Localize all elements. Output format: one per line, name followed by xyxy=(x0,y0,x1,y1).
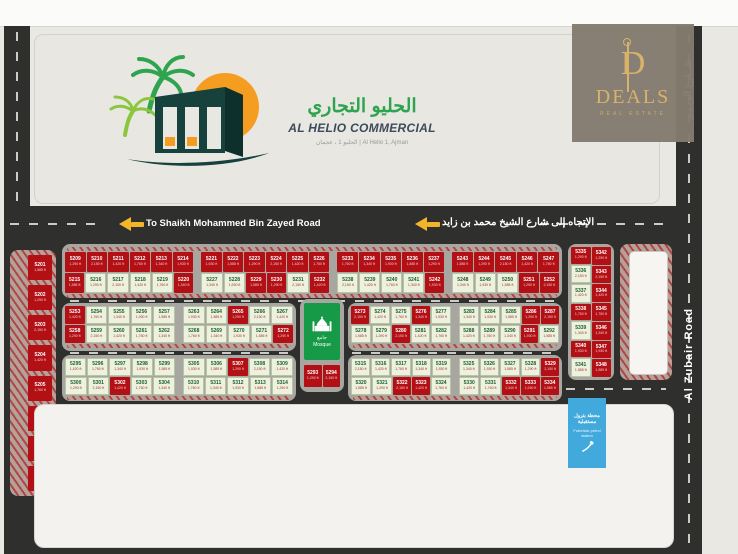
plot-5281: 52811,420 ft xyxy=(411,325,431,343)
parking-hatch xyxy=(67,396,291,400)
plot-5230: 52301,290 ft xyxy=(267,273,287,293)
plot-5309: 53091,420 ft xyxy=(271,358,293,376)
plot-5297: 52971,340 ft xyxy=(109,358,130,376)
plot-5286: 52861,290 ft xyxy=(522,306,540,324)
plot-group: 52531,420 ft52541,760 ft52551,340 ft5256… xyxy=(65,306,175,324)
parking-hatch xyxy=(353,344,557,348)
plot-5313: 53131,585 ft xyxy=(250,377,271,395)
road-dash-line xyxy=(10,223,102,225)
plot-5282: 52821,760 ft xyxy=(431,325,451,343)
plot-group: 52431,585 ft52441,290 ft52452,150 ft5246… xyxy=(452,252,559,272)
plot-block-row1: 52091,290 ft52102,150 ft52111,420 ft5212… xyxy=(62,244,562,298)
plot-5303: 53031,760 ft xyxy=(131,377,153,395)
plot-group: 52271,340 ft52281,930 ft52291,585 ft5230… xyxy=(201,273,329,293)
plot-5248: 52481,340 ft xyxy=(452,273,473,293)
plot-5204: 52041,420 ft xyxy=(28,345,52,370)
plot-group: 52211,930 ft52221,585 ft52231,290 ft5224… xyxy=(201,252,329,272)
plot-5274: 52741,420 ft xyxy=(370,306,390,324)
plot-group: 53051,930 ft53061,585 ft53071,290 ft5308… xyxy=(183,358,293,376)
plot-5205: 52051,760 ft xyxy=(28,376,52,401)
plot-5306: 53061,585 ft xyxy=(206,358,228,376)
plot-5241: 52411,340 ft xyxy=(403,273,424,293)
al-helio-logo-graphic-icon xyxy=(97,49,297,189)
deals-name: DEALS xyxy=(596,86,670,109)
plot-5327: 53271,585 ft xyxy=(500,358,520,376)
top-road: To Shaikh Mohammed Bin Zayed Road الإتجا… xyxy=(4,206,676,242)
plot-5271: 52711,585 ft xyxy=(251,325,273,343)
plot-5231: 52312,150 ft xyxy=(287,273,309,293)
plot-5299: 52991,585 ft xyxy=(154,358,175,376)
plot-5261: 52611,760 ft xyxy=(131,325,153,343)
plot-5217: 52172,150 ft xyxy=(107,273,128,293)
plot-group: 53101,760 ft53111,340 ft53121,930 ft5313… xyxy=(183,377,293,395)
plot-5304: 53041,340 ft xyxy=(153,377,175,395)
plot-5209: 52091,290 ft xyxy=(65,252,86,272)
plot-5212: 52121,760 ft xyxy=(130,252,151,272)
plot-group: 52091,290 ft52102,150 ft52111,420 ft5212… xyxy=(65,252,193,272)
plot-5275: 52751,760 ft xyxy=(391,306,411,324)
petrol-station-label-arabic: محطة بترول مستقبلية xyxy=(570,413,604,426)
plot-group: 52781,585 ft52791,290 ft52802,150 ft5281… xyxy=(351,325,451,343)
reserved-block xyxy=(620,244,672,380)
reserved-block-inner xyxy=(629,251,668,375)
road-dash-line xyxy=(70,352,292,354)
plot-5260: 52601,420 ft xyxy=(108,325,130,343)
plot-5300: 53001,290 ft xyxy=(65,377,87,395)
plot-column: 53351,290 ft53362,150 ft53371,420 ft5338… xyxy=(571,247,591,377)
plot-block-row2-right: 52732,150 ft52741,420 ft52751,760 ft5276… xyxy=(348,303,562,351)
plot-5293: 52931,290 ft xyxy=(304,365,322,387)
road-dash-line xyxy=(566,388,666,390)
plot-5256: 52561,930 ft xyxy=(131,306,153,324)
plot-5342: 53421,290 ft xyxy=(592,247,612,265)
petrol-station-label-english: Futuristic petrol station xyxy=(570,428,604,438)
plot-5288: 52881,420 ft xyxy=(459,325,479,343)
plot-5214: 52141,930 ft xyxy=(173,252,194,272)
plot-5344: 53441,420 ft xyxy=(592,284,612,302)
plot-5266: 52662,150 ft xyxy=(249,306,271,324)
plot-5265: 52651,290 ft xyxy=(228,306,248,324)
plot-5223: 52231,290 ft xyxy=(244,252,265,272)
plot-5278: 52781,585 ft xyxy=(351,325,371,343)
plot-group: 52631,930 ft52641,585 ft52651,290 ft5266… xyxy=(183,306,293,324)
plot-5284: 52841,930 ft xyxy=(480,306,500,324)
plot-5330: 53301,420 ft xyxy=(459,377,479,395)
plot-5253: 52531,420 ft xyxy=(65,306,85,324)
left-access-road xyxy=(4,26,30,208)
plot-5328: 53281,290 ft xyxy=(521,358,541,376)
plot-5210: 52102,150 ft xyxy=(87,252,108,272)
plot-5201: 52011,585 ft xyxy=(28,255,52,280)
plot-group: 52881,420 ft52891,760 ft52901,340 ft5291… xyxy=(459,325,559,343)
parking-hatch xyxy=(353,396,557,400)
plot-5219: 52191,760 ft xyxy=(152,273,173,293)
plot-block-vertical: 53351,290 ft53362,150 ft53371,420 ft5338… xyxy=(568,244,614,380)
plot-5272: 52721,290 ft xyxy=(273,325,293,343)
plot-5257: 52571,585 ft xyxy=(153,306,175,324)
plot-5317: 53171,760 ft xyxy=(391,358,410,376)
plot-5270: 52701,930 ft xyxy=(228,325,250,343)
logo-block: الحليو التجاري AL HELIO COMMERCIAL الحلي… xyxy=(34,34,660,204)
plot-5280: 52802,150 ft xyxy=(392,325,410,343)
plot-5240: 52401,760 ft xyxy=(381,273,402,293)
plot-5315: 53152,150 ft xyxy=(351,358,370,376)
road-dash-line xyxy=(16,32,18,202)
plot-5294: 52942,150 ft xyxy=(323,365,341,387)
plot-group: 53301,420 ft53311,760 ft53321,340 ft5333… xyxy=(459,377,559,395)
plot-5314: 53141,290 ft xyxy=(272,377,293,395)
plot-5335: 53351,290 ft xyxy=(571,247,591,264)
plot-5250: 52501,585 ft xyxy=(497,273,518,293)
plot-5324: 53241,760 ft xyxy=(431,377,451,395)
plot-5295: 52951,420 ft xyxy=(65,358,86,376)
deals-tagline: REAL ESTATE xyxy=(600,111,666,117)
plot-5233: 52331,760 ft xyxy=(337,252,358,272)
plot-5229: 52291,585 ft xyxy=(246,273,266,293)
plot-5333: 53331,930 ft xyxy=(521,377,539,395)
mosque-plot: جامع Mosque xyxy=(304,303,340,360)
plot-5338: 53381,760 ft xyxy=(571,304,591,321)
plot-5296: 52961,760 ft xyxy=(87,358,108,376)
plot-5301: 53012,150 ft xyxy=(88,377,110,395)
parking-hatch xyxy=(67,344,291,348)
plot-5224: 52242,150 ft xyxy=(266,252,287,272)
plot-5289: 52891,760 ft xyxy=(480,325,500,343)
plot-5347: 53471,930 ft xyxy=(592,341,612,359)
plot-5308: 53082,150 ft xyxy=(249,358,271,376)
plot-5232: 52321,420 ft xyxy=(310,273,330,293)
plot-group: 52732,150 ft52741,420 ft52751,760 ft5276… xyxy=(351,306,451,324)
plot-5215: 52151,585 ft xyxy=(65,273,84,293)
plot-group: 53152,150 ft53161,420 ft53171,760 ft5318… xyxy=(351,358,451,376)
plot-5255: 52551,340 ft xyxy=(108,306,130,324)
direction-arrow-icon xyxy=(112,217,144,231)
plot-5222: 52221,585 ft xyxy=(223,252,244,272)
plot-5312: 53121,930 ft xyxy=(227,377,248,395)
plot-5239: 52391,420 ft xyxy=(359,273,380,293)
plot-5243: 52431,585 ft xyxy=(452,252,473,272)
parking-hatch xyxy=(67,247,557,251)
plot-5305: 53051,930 ft xyxy=(183,358,205,376)
plot-5254: 52541,760 ft xyxy=(86,306,108,324)
plot-5340: 53401,930 ft xyxy=(571,341,591,358)
plot-5251: 52511,290 ft xyxy=(519,273,538,293)
plot-5285: 52851,585 ft xyxy=(501,306,521,324)
plot-5320: 53201,585 ft xyxy=(351,377,371,395)
plot-5279: 52791,290 ft xyxy=(372,325,392,343)
top-road-label-english: To Shaikh Mohammed Bin Zayed Road xyxy=(146,218,321,229)
plot-5244: 52441,290 ft xyxy=(474,252,495,272)
plot-5307: 53071,290 ft xyxy=(228,358,248,376)
plot-group: 53201,585 ft53211,290 ft53222,150 ft5323… xyxy=(351,377,451,395)
plot-5277: 52771,930 ft xyxy=(431,306,451,324)
plot-5226: 52261,760 ft xyxy=(309,252,330,272)
plot-5283: 52831,340 ft xyxy=(459,306,479,324)
plot-5211: 52111,420 ft xyxy=(108,252,129,272)
top-road-label-arabic: الإتجاه إلى شارع الشيخ محمد بن زايد xyxy=(442,217,594,228)
plot-5237: 52371,290 ft xyxy=(424,252,445,272)
plot-5322: 53222,150 ft xyxy=(393,377,411,395)
plot-5334: 53341,585 ft xyxy=(541,377,559,395)
plot-5235: 52351,930 ft xyxy=(381,252,402,272)
plot-5290: 52901,340 ft xyxy=(500,325,520,343)
plot-5269: 52691,340 ft xyxy=(206,325,228,343)
plot-block-row2-left: 52531,420 ft52541,760 ft52551,340 ft5256… xyxy=(62,303,296,351)
plot-5329: 53292,150 ft xyxy=(541,358,559,376)
plot-5332: 53321,340 ft xyxy=(502,377,520,395)
plot-5339: 53391,340 ft xyxy=(571,321,591,340)
plot-5348: 53481,585 ft xyxy=(592,359,612,377)
plot-5249: 52491,930 ft xyxy=(475,273,496,293)
plot-5213: 52131,340 ft xyxy=(151,252,172,272)
plot-5268: 52681,760 ft xyxy=(183,325,205,343)
deals-key-logo-icon: D xyxy=(621,49,646,80)
mosque-label-arabic: جامع xyxy=(317,335,327,341)
plot-5262: 52621,340 ft xyxy=(153,325,175,343)
plot-5316: 53161,420 ft xyxy=(371,358,390,376)
plot-5287: 52872,150 ft xyxy=(541,306,559,324)
plot-5326: 53261,930 ft xyxy=(480,358,500,376)
plot-group: 52951,420 ft52961,760 ft52971,340 ft5298… xyxy=(65,358,175,376)
plot-5337: 53371,420 ft xyxy=(571,284,591,303)
plot-column: 53421,290 ft53432,150 ft53441,420 ft5345… xyxy=(592,247,612,377)
plot-5258: 52581,290 ft xyxy=(65,325,85,343)
plot-5252: 52522,150 ft xyxy=(540,273,559,293)
deals-watermark: D DEALS REAL ESTATE xyxy=(572,24,694,142)
plot-5302: 53021,420 ft xyxy=(110,377,130,395)
plot-5318: 53181,340 ft xyxy=(412,358,431,376)
mosque-block: جامع Mosque 52931,290 ft52942,150 ft xyxy=(300,299,344,392)
plot-block-row3-right: 53152,150 ft53161,420 ft53171,760 ft5318… xyxy=(348,355,562,401)
plot-group: 52931,290 ft52942,150 ft xyxy=(304,365,340,387)
plot-block-row3-left: 52951,420 ft52961,760 ft52971,340 ft5298… xyxy=(62,355,296,401)
frame-top-strip xyxy=(0,0,738,27)
plot-5319: 53191,930 ft xyxy=(432,358,451,376)
plot-5227: 52271,340 ft xyxy=(201,273,223,293)
plot-5346: 53461,340 ft xyxy=(592,322,612,340)
deals-initial: D xyxy=(621,45,646,82)
plot-5336: 53362,150 ft xyxy=(571,265,591,284)
logo-title-arabic: الحليو التجاري xyxy=(287,97,437,118)
plot-group: 52151,585 ft52161,290 ft52172,150 ft5218… xyxy=(65,273,193,293)
road-dash-line xyxy=(352,352,558,354)
fuel-pump-icon xyxy=(581,440,594,453)
plot-5311: 53111,340 ft xyxy=(205,377,226,395)
plot-5228: 52281,930 ft xyxy=(224,273,246,293)
plot-group: 53001,290 ft53012,150 ft53021,420 ft5303… xyxy=(65,377,175,395)
plot-5298: 52981,930 ft xyxy=(132,358,153,376)
flyer-root: { "logo": { "title_ar": "الحليو التجاري"… xyxy=(0,0,738,554)
plot-5218: 52181,420 ft xyxy=(130,273,151,293)
plot-5245: 52452,150 ft xyxy=(495,252,516,272)
plot-5310: 53101,760 ft xyxy=(183,377,204,395)
mosque-icon xyxy=(311,316,333,334)
plot-5323: 53231,420 ft xyxy=(412,377,430,395)
plot-group: 52681,760 ft52691,340 ft52701,930 ft5271… xyxy=(183,325,293,343)
plot-5234: 52341,340 ft xyxy=(359,252,380,272)
plot-5225: 52251,420 ft xyxy=(287,252,308,272)
plot-5203: 52032,150 ft xyxy=(28,315,52,340)
plot-5276: 52761,340 ft xyxy=(412,306,430,324)
plot-5264: 52641,585 ft xyxy=(206,306,228,324)
plot-5331: 53311,760 ft xyxy=(480,377,500,395)
plot-5216: 52161,290 ft xyxy=(85,273,106,293)
mosque-label-english: Mosque xyxy=(313,342,331,348)
plot-5267: 52671,420 ft xyxy=(271,306,293,324)
al-zubair-road-label-english: Al Zubair Road xyxy=(683,308,695,400)
petrol-station-plot: محطة بترول مستقبلية Futuristic petrol st… xyxy=(568,398,606,468)
plot-5246: 52461,420 ft xyxy=(517,252,538,272)
parking-hatch xyxy=(67,294,557,298)
plot-5247: 52471,760 ft xyxy=(538,252,559,272)
plot-5343: 53432,150 ft xyxy=(592,266,612,284)
plot-group: 52831,340 ft52841,930 ft52851,585 ft5286… xyxy=(459,306,559,324)
logo-subtitle: الحليو 1 ، عجمان | Al Helio 1, Ajman xyxy=(287,139,437,146)
plot-5325: 53251,340 ft xyxy=(459,358,479,376)
plot-group: 52382,150 ft52391,420 ft52401,760 ft5241… xyxy=(337,273,444,293)
plot-5345: 53451,760 ft xyxy=(592,303,612,321)
logo-text-block: الحليو التجاري AL HELIO COMMERCIAL الحلي… xyxy=(287,97,437,146)
plot-5273: 52732,150 ft xyxy=(351,306,369,324)
plot-5220: 52201,340 ft xyxy=(174,273,193,293)
direction-arrow-icon xyxy=(408,217,440,231)
plot-5221: 52211,930 ft xyxy=(201,252,222,272)
plot-group: 52581,290 ft52592,150 ft52601,420 ft5261… xyxy=(65,325,175,343)
plot-5238: 52382,150 ft xyxy=(337,273,358,293)
plot-5259: 52592,150 ft xyxy=(86,325,108,343)
plot-5341: 53411,585 ft xyxy=(571,358,591,377)
plot-5236: 52361,585 ft xyxy=(402,252,423,272)
plot-5202: 52021,290 ft xyxy=(28,285,52,310)
plot-5242: 52421,930 ft xyxy=(425,273,444,293)
plot-5321: 53211,290 ft xyxy=(372,377,392,395)
plot-group: 52481,340 ft52491,930 ft52501,585 ft5251… xyxy=(452,273,559,293)
logo-title-english: AL HELIO COMMERCIAL xyxy=(287,121,437,135)
plot-group: 53251,340 ft53261,930 ft53271,585 ft5328… xyxy=(459,358,559,376)
plot-group: 52331,760 ft52341,340 ft52351,930 ft5236… xyxy=(337,252,444,272)
plot-5263: 52631,930 ft xyxy=(183,306,205,324)
plot-5292: 52921,585 ft xyxy=(539,325,559,343)
plot-5291: 52911,930 ft xyxy=(521,325,539,343)
